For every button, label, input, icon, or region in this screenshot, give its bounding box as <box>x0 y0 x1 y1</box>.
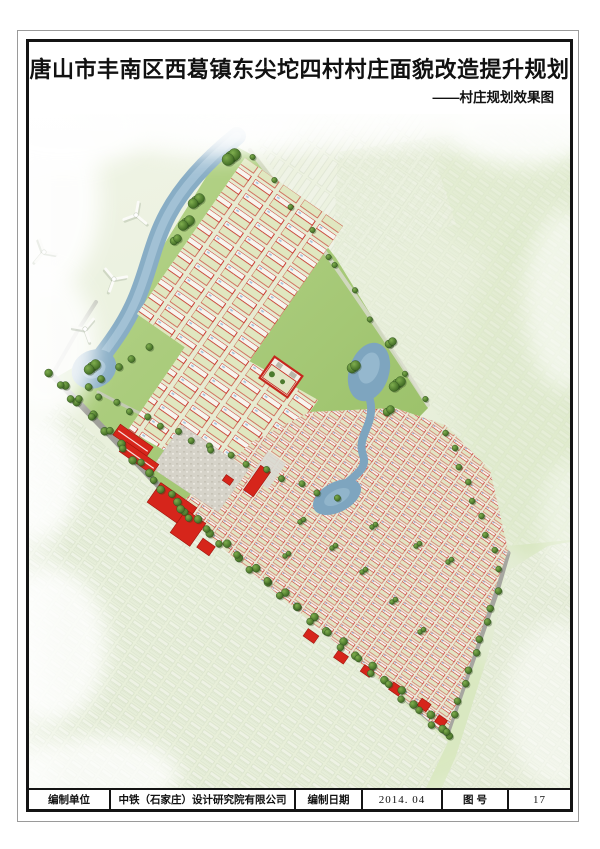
tree-icon <box>45 369 53 377</box>
tree-icon <box>185 515 192 522</box>
tree-icon <box>456 464 462 470</box>
tree-icon <box>373 522 378 527</box>
tree-icon <box>496 566 502 572</box>
tree-icon <box>278 475 284 481</box>
title-block-label-sheet-no: 图 号 <box>441 790 507 809</box>
title-block-unit-value: 中铁（石家庄）设计研究院有限公司 <box>109 790 294 809</box>
tree-icon <box>174 235 182 243</box>
tree-icon <box>495 588 502 595</box>
tree-icon <box>250 154 256 160</box>
plan-rendering <box>29 114 570 788</box>
tree-icon <box>95 394 101 400</box>
tree-icon <box>203 525 210 532</box>
tree-icon <box>223 540 231 548</box>
tree-icon <box>337 644 344 651</box>
tree-icon <box>263 466 269 472</box>
tree-icon <box>369 662 377 670</box>
tree-icon <box>452 445 458 451</box>
tree-icon <box>487 605 494 612</box>
tree-icon <box>145 469 153 477</box>
tree-icon <box>423 396 429 402</box>
tree-icon <box>243 461 249 467</box>
tree-icon <box>492 547 498 553</box>
tree-icon <box>393 597 398 602</box>
tree-icon <box>150 477 157 484</box>
drawing-sheet: 唐山市丰南区西葛镇东尖坨四村村庄面貌改造提升规划 ——村庄规划效果图 <box>0 0 600 849</box>
tree-icon <box>294 603 301 610</box>
tree-icon <box>484 618 491 625</box>
tree-icon <box>146 343 153 350</box>
inner-border-frame: 唐山市丰南区西葛镇东尖坨四村村庄面貌改造提升规划 ——村庄规划效果图 <box>26 39 573 812</box>
tree-icon <box>402 371 408 377</box>
tree-icon <box>228 452 234 458</box>
tree-icon <box>367 670 374 677</box>
tree-icon <box>387 406 395 414</box>
tree-icon <box>367 317 373 323</box>
tree-icon <box>67 395 74 402</box>
tree-icon <box>97 375 104 382</box>
title-block-date-value: 2014. 04 <box>361 790 441 809</box>
tree-icon <box>427 711 435 719</box>
tree-icon <box>462 680 469 687</box>
tree-icon <box>465 479 471 485</box>
tree-icon <box>246 566 253 573</box>
tree-icon <box>114 399 120 405</box>
tree-icon <box>137 459 144 466</box>
tree-icon <box>333 543 338 548</box>
tree-icon <box>409 701 417 709</box>
tree-icon <box>57 382 64 389</box>
tree-icon <box>194 515 202 523</box>
tree-icon <box>451 711 458 718</box>
tree-icon <box>276 592 283 599</box>
tree-icon <box>443 729 450 736</box>
tree-icon <box>178 221 188 231</box>
tree-icon <box>272 177 278 183</box>
tree-icon <box>428 722 435 729</box>
tree-icon <box>128 355 135 362</box>
tree-icon <box>332 262 338 268</box>
tree-icon <box>363 567 368 572</box>
tree-icon <box>389 338 397 346</box>
tree-icon <box>398 696 405 703</box>
tree-icon <box>301 517 306 522</box>
page-title: 唐山市丰南区西葛镇东尖坨四村村庄面貌改造提升规划 <box>29 52 570 84</box>
tree-icon <box>326 254 332 260</box>
tree-icon <box>175 428 181 434</box>
tree-icon <box>324 629 331 636</box>
tree-icon <box>88 413 95 420</box>
tree-icon <box>469 498 475 504</box>
tree-icon <box>106 427 113 434</box>
tree-icon <box>144 414 150 420</box>
tree-icon <box>385 681 392 688</box>
page-subtitle: ——村庄规划效果图 <box>433 86 555 106</box>
title-block: 编制单位 中铁（石家庄）设计研究院有限公司 编制日期 2014. 04 图 号 … <box>29 788 570 809</box>
tree-icon <box>85 383 92 390</box>
tree-icon <box>473 649 480 656</box>
tree-icon <box>299 481 305 487</box>
tree-icon <box>334 495 340 501</box>
tree-icon <box>314 490 320 496</box>
tree-icon <box>465 667 472 674</box>
tree-icon <box>288 204 294 210</box>
tree-icon <box>286 551 291 556</box>
tree-icon <box>233 551 240 558</box>
tree-icon <box>157 423 163 429</box>
tree-icon <box>119 445 126 452</box>
tree-icon <box>157 485 165 493</box>
tree-icon <box>188 438 194 444</box>
tree-icon <box>389 382 399 392</box>
tree-icon <box>449 557 454 562</box>
tree-icon <box>215 540 222 547</box>
tree-icon <box>482 532 488 538</box>
tree-icon <box>168 491 175 498</box>
tree-icon <box>352 287 358 293</box>
tree-icon <box>207 447 213 453</box>
title-block-sheet-no-value: 17 <box>507 790 570 809</box>
tree-icon <box>479 513 485 519</box>
tree-icon <box>307 618 314 625</box>
tree-icon <box>177 505 185 513</box>
tree-icon <box>115 363 122 370</box>
tree-icon <box>421 627 426 632</box>
tree-icon <box>443 430 449 436</box>
tree-icon <box>188 199 198 209</box>
tree-icon <box>84 365 94 375</box>
tree-icon <box>417 541 422 546</box>
village-plan-map <box>29 114 570 788</box>
tree-icon <box>476 636 483 643</box>
tree-icon <box>398 686 406 694</box>
tree-icon <box>310 227 316 233</box>
tree-icon <box>75 395 82 402</box>
tree-icon <box>355 655 362 662</box>
title-block-label-unit: 编制单位 <box>29 790 109 809</box>
tree-icon <box>416 707 423 714</box>
tree-icon <box>126 408 132 414</box>
tree-icon <box>222 154 234 166</box>
title-block-label-date: 编制日期 <box>294 790 361 809</box>
tree-icon <box>351 361 361 371</box>
tree-icon <box>129 456 137 464</box>
tree-icon <box>454 698 461 705</box>
tree-icon <box>173 498 181 506</box>
tree-icon <box>264 577 271 584</box>
